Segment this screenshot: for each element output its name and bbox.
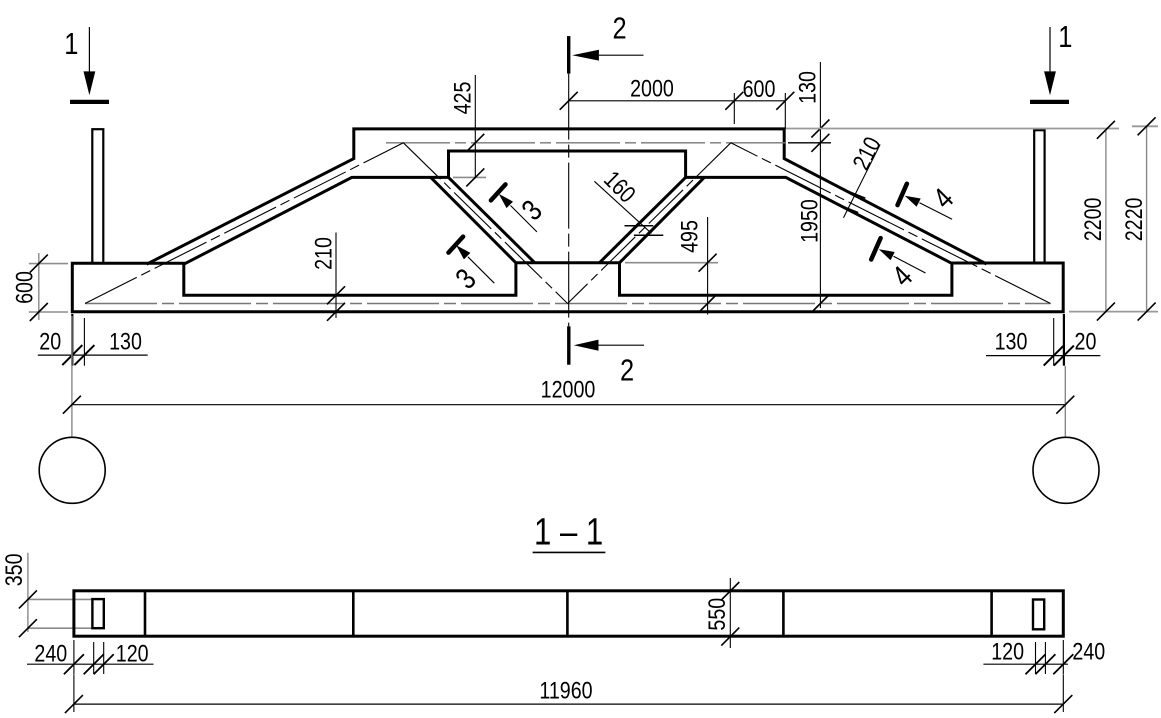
svg-text:2: 2 <box>613 11 627 46</box>
svg-text:240: 240 <box>1072 638 1105 665</box>
svg-text:2000: 2000 <box>630 75 674 102</box>
svg-text:130: 130 <box>794 71 821 104</box>
svg-text:20: 20 <box>1075 327 1097 354</box>
svg-text:210: 210 <box>847 132 886 174</box>
svg-text:1950: 1950 <box>796 199 823 243</box>
svg-text:350: 350 <box>0 553 27 586</box>
svg-text:120: 120 <box>116 640 149 667</box>
svg-text:425: 425 <box>449 82 476 115</box>
svg-text:130: 130 <box>109 327 142 354</box>
svg-text:1 – 1: 1 – 1 <box>534 512 603 554</box>
svg-text:210: 210 <box>310 237 337 270</box>
svg-text:20: 20 <box>39 327 61 354</box>
svg-text:11960: 11960 <box>539 677 592 704</box>
svg-text:600: 600 <box>11 271 38 304</box>
svg-text:12000: 12000 <box>541 375 596 402</box>
svg-text:2220: 2220 <box>1120 198 1147 242</box>
svg-text:130: 130 <box>995 327 1028 354</box>
svg-text:160: 160 <box>599 165 642 208</box>
svg-text:1: 1 <box>64 27 78 62</box>
svg-text:2200: 2200 <box>1079 198 1106 242</box>
svg-text:240: 240 <box>34 640 67 667</box>
svg-text:1: 1 <box>1058 20 1072 55</box>
svg-text:600: 600 <box>743 75 776 102</box>
svg-text:4: 4 <box>926 181 960 215</box>
svg-text:550: 550 <box>703 598 730 631</box>
svg-text:495: 495 <box>676 220 703 253</box>
svg-text:2: 2 <box>620 353 634 388</box>
svg-text:3: 3 <box>515 193 549 227</box>
svg-text:120: 120 <box>991 638 1024 665</box>
svg-text:4: 4 <box>885 259 919 293</box>
